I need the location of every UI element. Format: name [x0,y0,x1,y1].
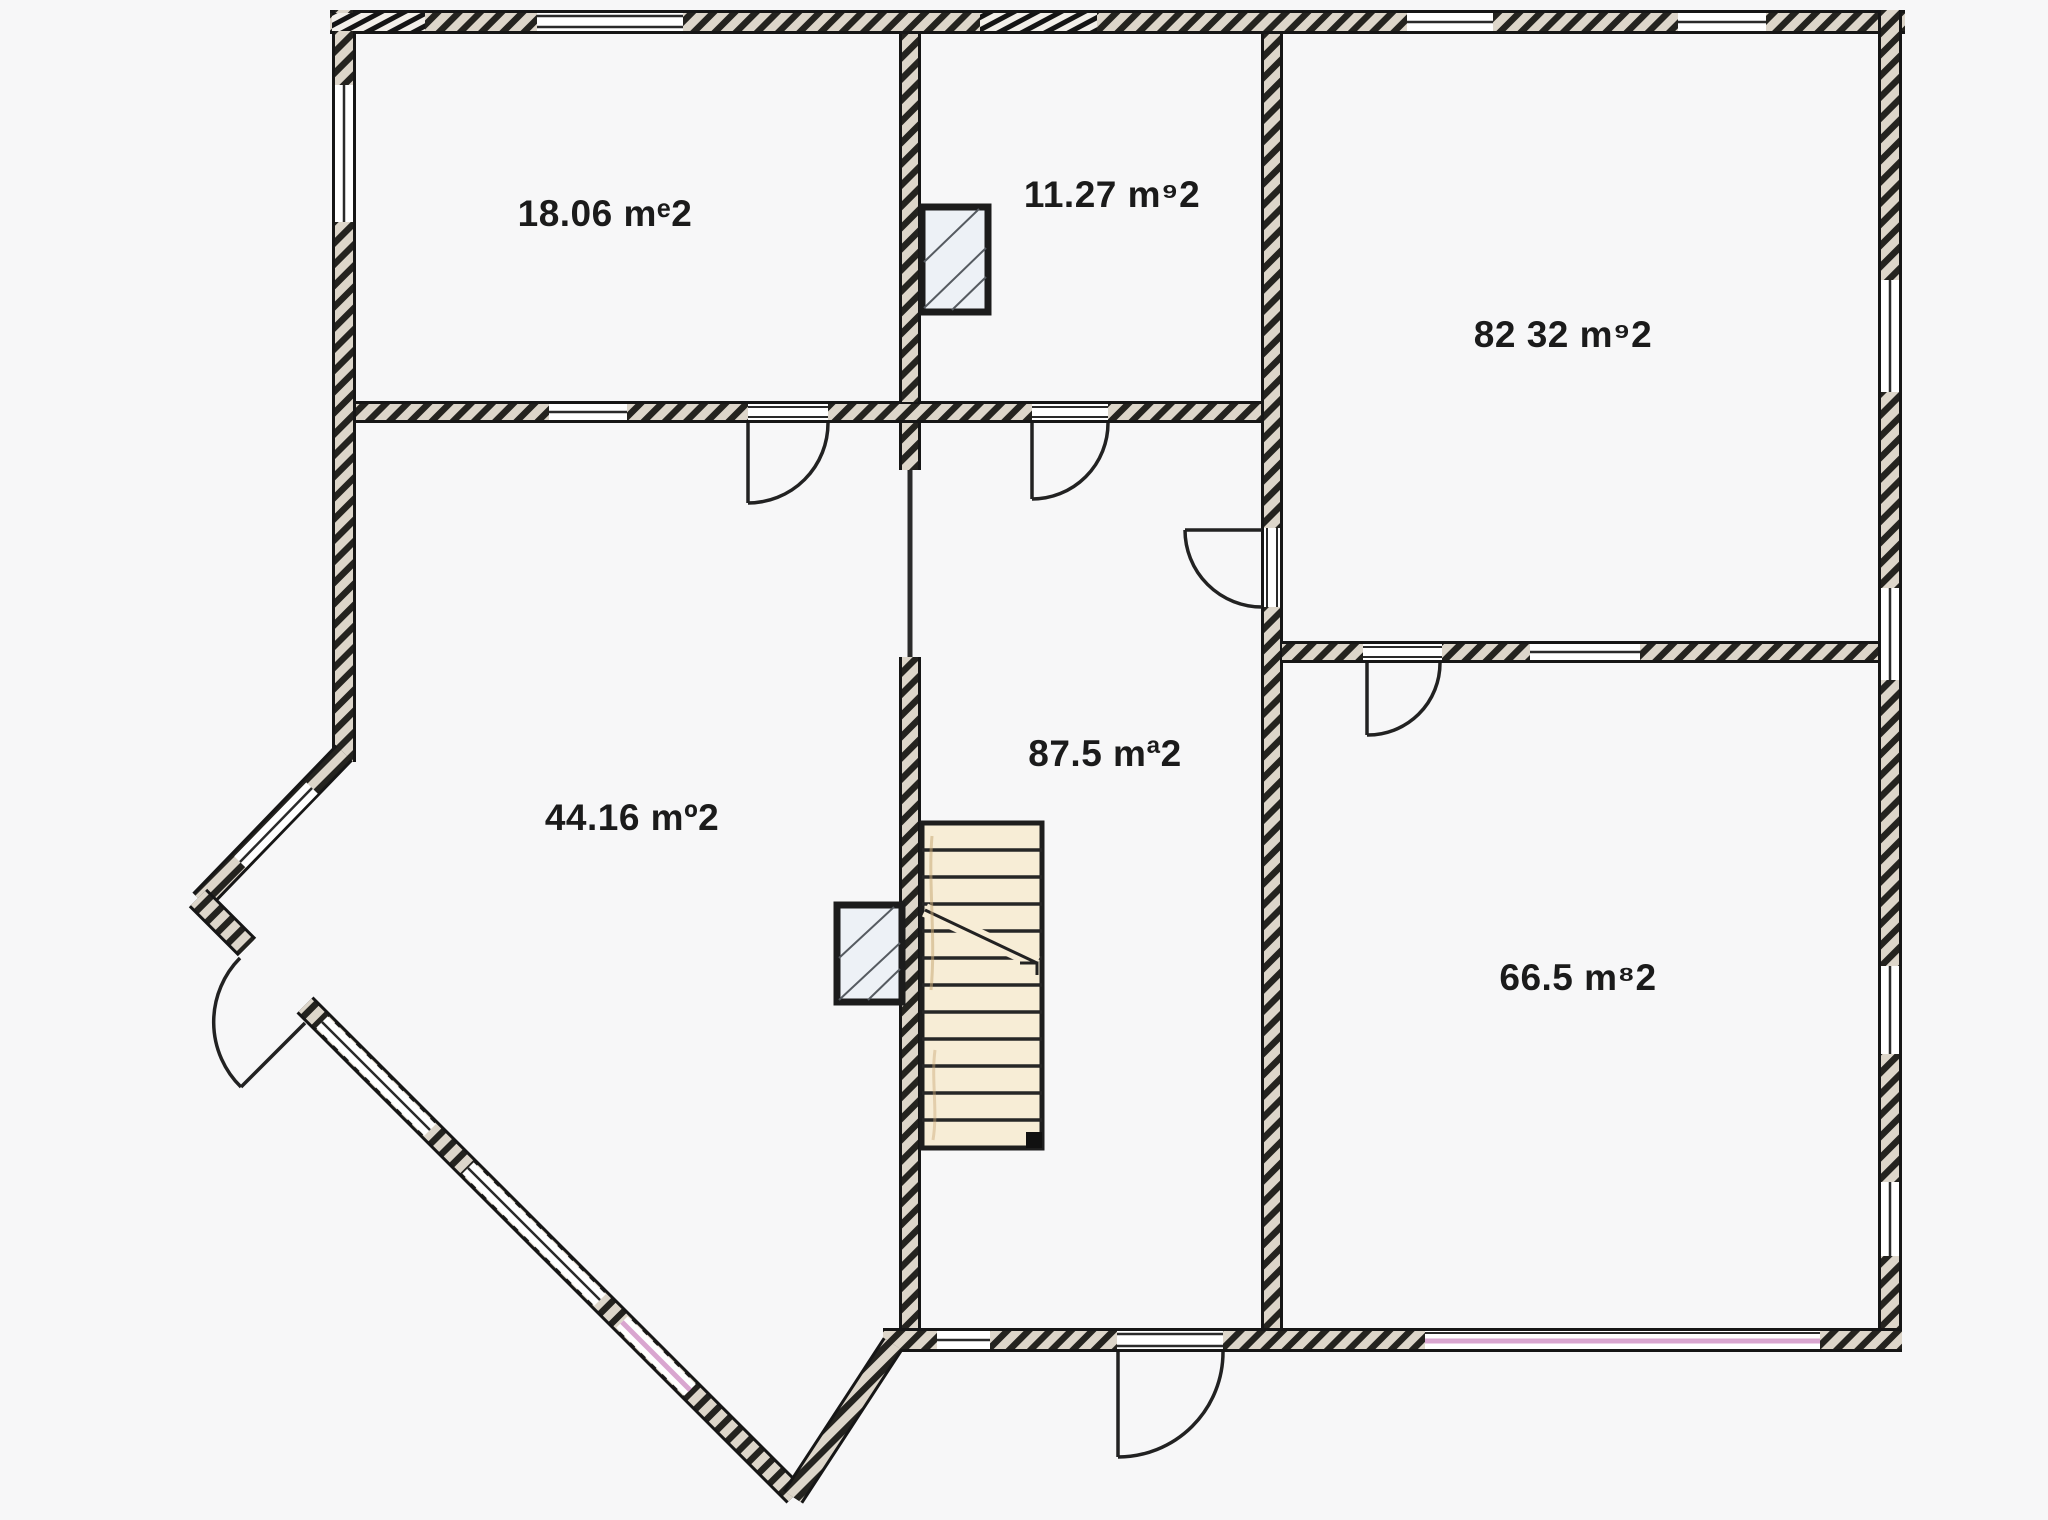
room-label-top-middle: 11.27 m⁹2 [1024,174,1200,216]
door-right-section [1367,663,1440,735]
room-label-hallway: 87.5 mª2 [1028,733,1181,775]
doors [214,423,1440,1457]
windows [240,16,1890,1390]
shaft-top [922,207,988,312]
room-label-top-left: 18.06 mᵉ2 [518,193,693,235]
room-label-bottom-right: 66.5 m⁸2 [1499,957,1656,999]
stair-landing-mark [1026,1132,1042,1148]
room-label-left: 44.16 mº2 [545,797,719,839]
door-exterior-bottom [1118,1352,1223,1457]
room-label-top-right: 82 32 m⁹2 [1474,314,1652,356]
door-room-topmid [1032,423,1108,499]
shaft-middle [837,905,902,1002]
door-entrance-diagonal [214,958,305,1087]
staircase [922,823,1042,1148]
floor-plan-drawing [0,0,2048,1520]
door-hallway [1185,530,1262,607]
door-room-left [748,423,828,503]
floor-plan: 18.06 mᵉ2 11.27 m⁹2 82 32 m⁹2 44.16 mº2 … [0,0,2048,1520]
